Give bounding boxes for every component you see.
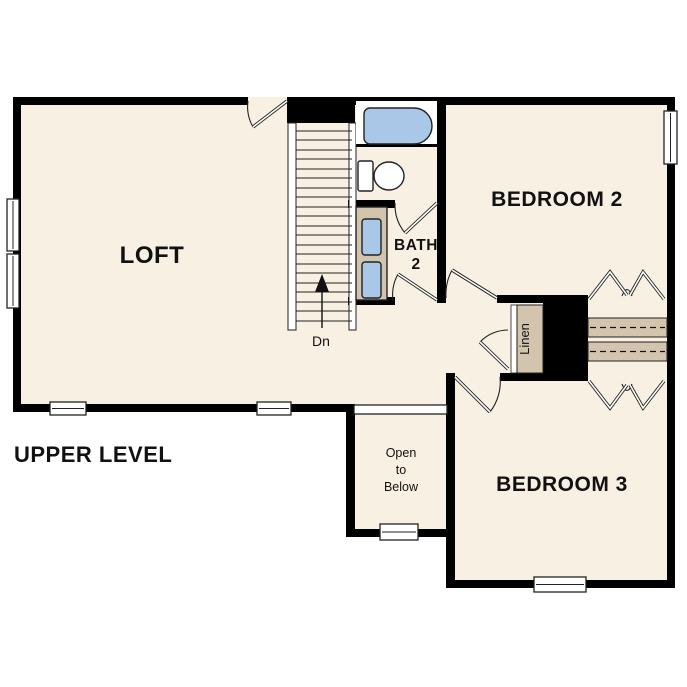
room-label-loft: LOFT: [120, 242, 185, 269]
toilet-tank-icon: [358, 161, 373, 191]
toilet-bowl-icon: [374, 162, 404, 190]
room-label-bath-line1: BATH: [394, 237, 438, 254]
floor-plan-page: LOFT BATH 2 BEDROOM 2 BEDROOM 3 Linen Dn…: [0, 0, 687, 687]
railing: [354, 405, 447, 414]
bathtub-icon: [364, 108, 432, 144]
stair-treads: [296, 131, 352, 321]
plan-title: UPPER LEVEL: [14, 442, 172, 467]
room-label-bedroom2: BEDROOM 2: [491, 188, 623, 211]
stair-header-wall: [287, 97, 355, 123]
wall-segment: [497, 295, 588, 303]
open-to-below-line3: Below: [384, 480, 419, 494]
open-to-below-line1: Open: [386, 446, 417, 460]
wall-segment: [346, 404, 355, 537]
stair-rail-left: [288, 123, 296, 330]
wall-segment: [667, 97, 675, 588]
chase-wall: [543, 303, 588, 381]
closet-label-linen: Linen: [517, 323, 532, 355]
wall-segment: [13, 97, 248, 105]
wall-segment: [437, 97, 446, 303]
sink-icon: [362, 219, 381, 255]
room-label-bedroom3: BEDROOM 3: [496, 473, 628, 496]
sink-icon: [362, 262, 381, 298]
floor-plan-canvas: LOFT BATH 2 BEDROOM 2 BEDROOM 3 Linen Dn…: [0, 0, 687, 687]
room-label-bath-line2: 2: [411, 256, 420, 273]
stair-direction-label: Dn: [312, 333, 330, 349]
open-to-below-line2: to: [396, 463, 406, 477]
